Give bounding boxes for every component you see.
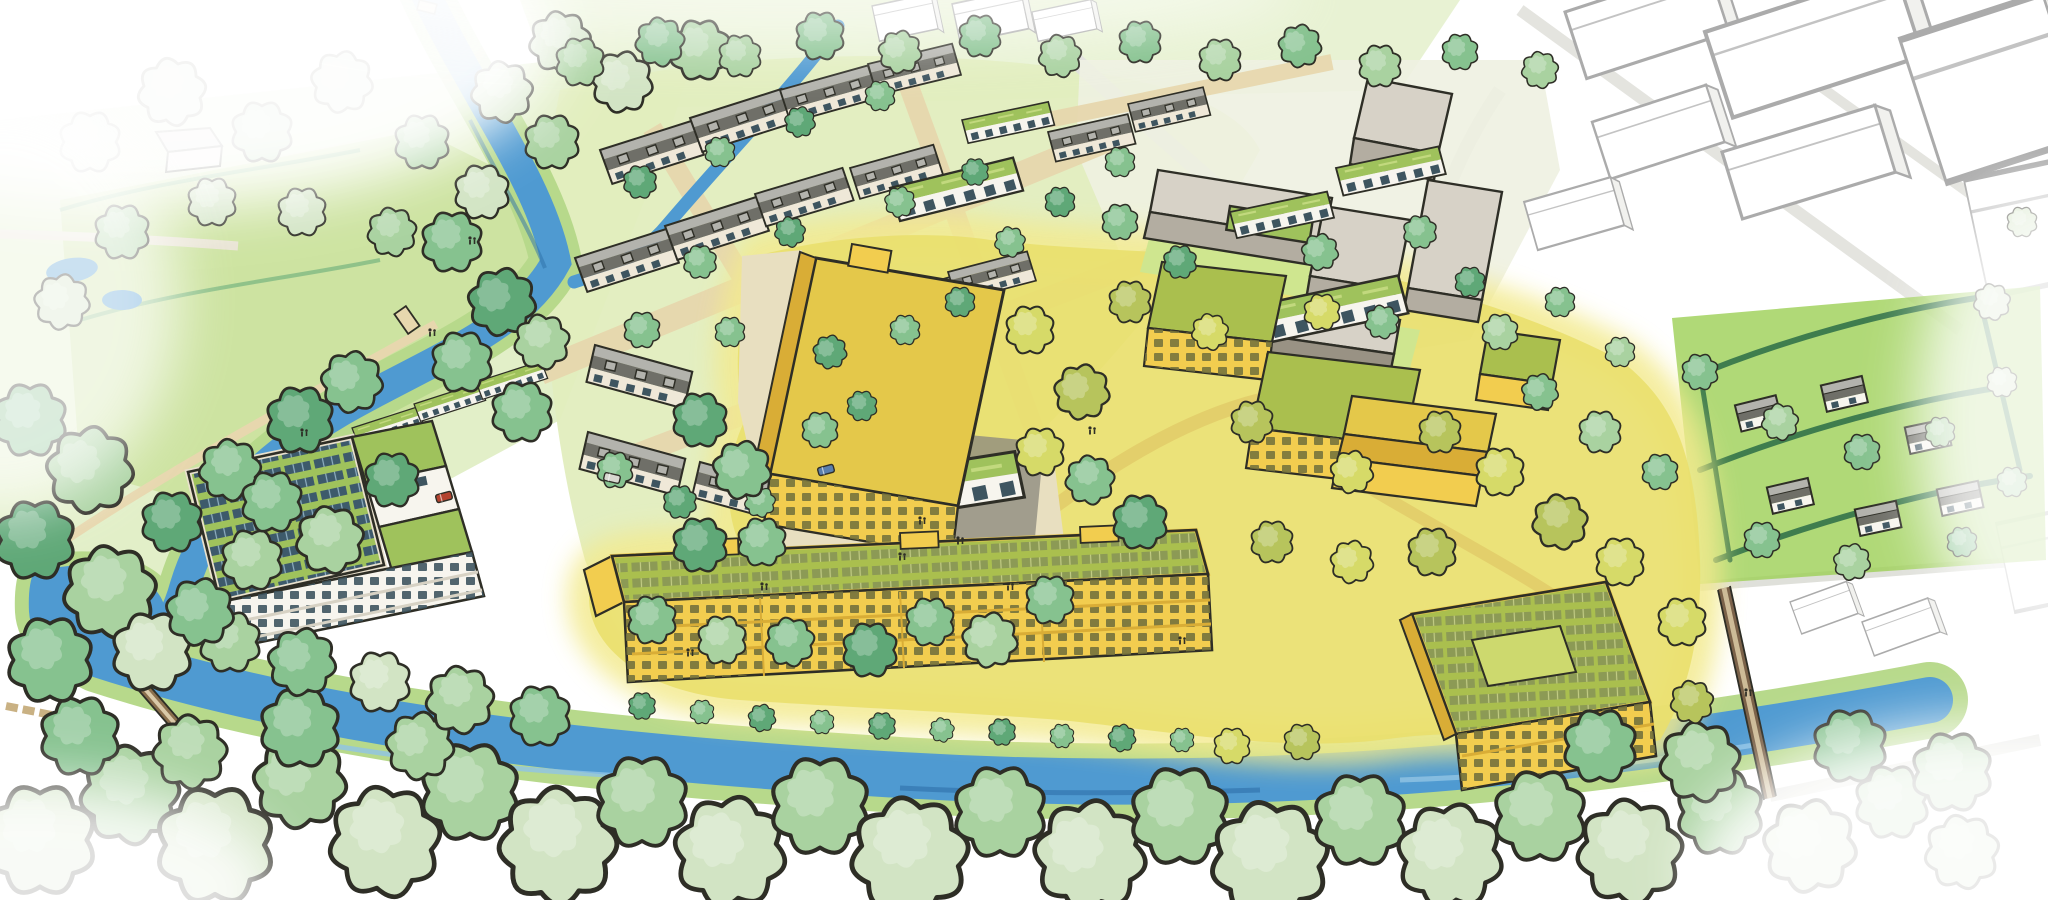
masterplan-illustration: Illustrative aerial masterplan of a rive… xyxy=(0,0,2048,900)
context-building-sketch xyxy=(1592,82,1736,187)
tree xyxy=(1570,792,1690,900)
context-building-sketch xyxy=(1862,596,1947,660)
context-building-sketch xyxy=(1722,101,1911,228)
masterplan-canvas xyxy=(0,0,2048,900)
context-building-sketch xyxy=(1790,580,1864,638)
tree xyxy=(669,791,791,900)
tree xyxy=(1394,800,1506,900)
